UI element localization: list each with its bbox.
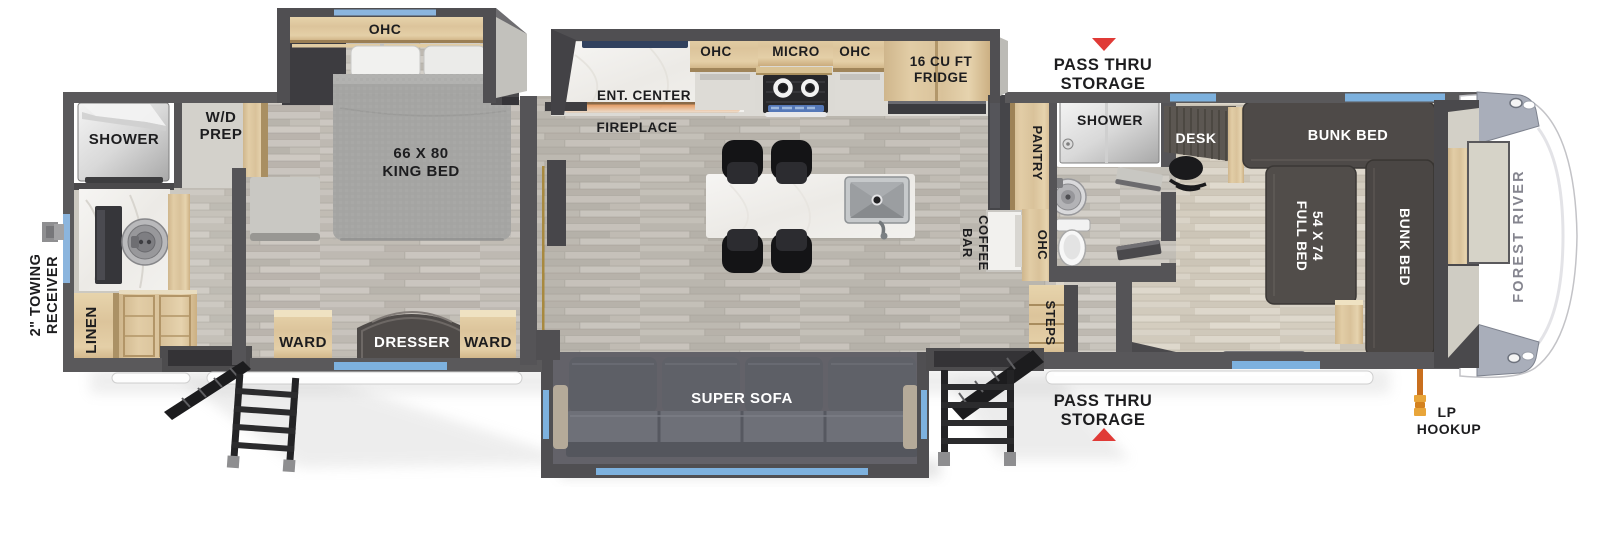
svg-text:BAR: BAR — [960, 228, 975, 258]
svg-text:STEPS: STEPS — [1043, 300, 1058, 345]
svg-text:PREP: PREP — [200, 126, 243, 143]
svg-text:OHC: OHC — [839, 44, 871, 59]
svg-text:SHOWER: SHOWER — [89, 131, 160, 148]
svg-text:RECEIVER: RECEIVER — [45, 256, 61, 334]
svg-text:HOOKUP: HOOKUP — [1417, 421, 1481, 437]
svg-text:OHC: OHC — [700, 44, 732, 59]
svg-text:W/D: W/D — [206, 109, 237, 126]
svg-text:PASS THRU: PASS THRU — [1054, 56, 1153, 74]
svg-text:KING BED: KING BED — [382, 163, 459, 180]
svg-text:16 CU FT: 16 CU FT — [910, 54, 973, 69]
svg-text:FOREST RIVER: FOREST RIVER — [1511, 169, 1527, 303]
svg-text:WARD: WARD — [464, 334, 512, 351]
svg-text:FULL BED: FULL BED — [1294, 201, 1309, 272]
svg-text:BUNK BED: BUNK BED — [1308, 128, 1389, 144]
svg-text:OHC: OHC — [1035, 230, 1050, 261]
svg-text:LP: LP — [1438, 404, 1457, 420]
svg-text:ENT. CENTER: ENT. CENTER — [597, 88, 691, 103]
svg-text:DRESSER: DRESSER — [374, 334, 450, 351]
svg-text:SHOWER: SHOWER — [1077, 112, 1143, 128]
svg-text:2" TOWING: 2" TOWING — [28, 254, 44, 337]
svg-text:PASS THRU: PASS THRU — [1054, 392, 1153, 410]
svg-text:54 X 74: 54 X 74 — [1310, 211, 1325, 261]
svg-text:STORAGE: STORAGE — [1061, 411, 1146, 429]
svg-text:BUNK BED: BUNK BED — [1397, 208, 1413, 286]
svg-text:MICRO: MICRO — [772, 44, 820, 59]
svg-text:66 X 80: 66 X 80 — [393, 145, 448, 162]
svg-text:FRIDGE: FRIDGE — [914, 70, 968, 85]
svg-text:STORAGE: STORAGE — [1061, 75, 1146, 93]
svg-text:OHC: OHC — [369, 21, 402, 37]
svg-text:WARD: WARD — [279, 334, 327, 351]
svg-text:FIREPLACE: FIREPLACE — [596, 120, 677, 135]
svg-text:COFFEE: COFFEE — [976, 215, 991, 271]
svg-text:PANTRY: PANTRY — [1030, 126, 1045, 181]
svg-text:DESK: DESK — [1176, 130, 1217, 146]
svg-text:SUPER SOFA: SUPER SOFA — [691, 390, 793, 407]
svg-text:LINEN: LINEN — [83, 306, 100, 354]
